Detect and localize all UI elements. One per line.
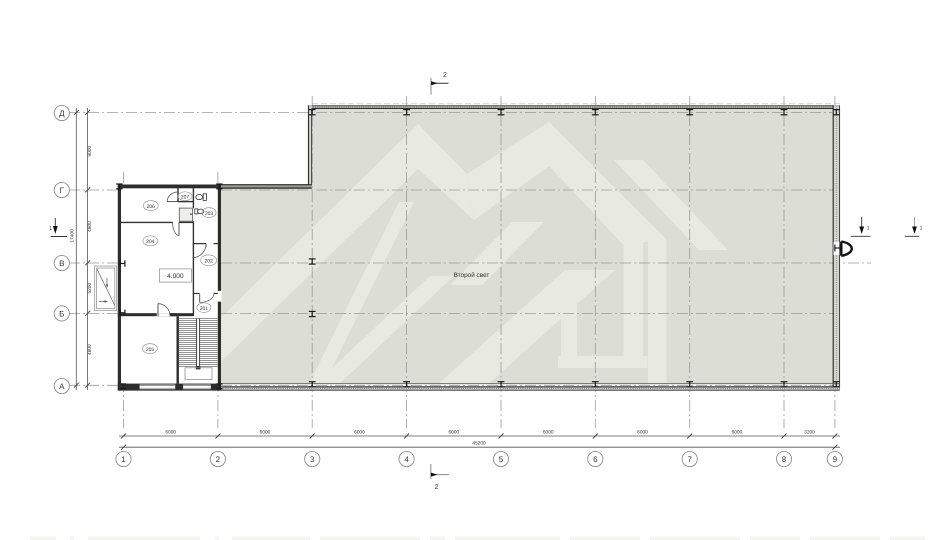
svg-text:6000: 6000 [354, 429, 365, 435]
svg-text:Б: Б [59, 309, 64, 318]
svg-text:Г: Г [60, 186, 65, 195]
svg-text:6000: 6000 [732, 429, 743, 435]
svg-text:А: А [59, 382, 65, 391]
svg-text:Д: Д [59, 109, 65, 118]
svg-text:6000: 6000 [543, 429, 554, 435]
svg-text:6000: 6000 [260, 429, 271, 435]
svg-text:1: 1 [867, 226, 870, 232]
svg-text:45200: 45200 [472, 441, 486, 447]
svg-text:5: 5 [499, 455, 504, 464]
svg-text:6: 6 [593, 455, 598, 464]
svg-text:В: В [59, 259, 64, 268]
svg-text:1: 1 [121, 455, 126, 464]
svg-text:205: 205 [146, 347, 155, 353]
svg-text:7: 7 [687, 455, 692, 464]
svg-text:204: 204 [146, 239, 155, 245]
svg-text:2: 2 [443, 72, 447, 79]
svg-text:6000: 6000 [165, 429, 176, 435]
svg-text:203: 203 [205, 211, 214, 217]
svg-text:3: 3 [310, 455, 315, 464]
svg-text:202: 202 [205, 259, 214, 265]
svg-text:5200: 5200 [87, 283, 93, 294]
svg-text:2: 2 [216, 455, 221, 464]
svg-text:Второй свет: Второй свет [454, 272, 490, 279]
svg-text:6000: 6000 [448, 429, 459, 435]
svg-text:4800: 4800 [87, 221, 93, 232]
svg-text:3200: 3200 [804, 429, 815, 435]
svg-text:1: 1 [920, 226, 923, 232]
svg-text:4: 4 [404, 455, 409, 464]
svg-text:206: 206 [147, 204, 156, 210]
svg-text:4800: 4800 [87, 344, 93, 355]
svg-text:201: 201 [200, 306, 209, 312]
svg-text:207: 207 [181, 194, 190, 200]
svg-text:2: 2 [435, 484, 439, 491]
svg-text:4.000: 4.000 [167, 273, 184, 280]
svg-text:17400: 17400 [70, 229, 76, 243]
svg-text:9: 9 [833, 455, 838, 464]
svg-text:6000: 6000 [637, 429, 648, 435]
svg-text:1: 1 [49, 226, 52, 232]
svg-text:8: 8 [782, 455, 787, 464]
svg-text:9000: 9000 [87, 146, 93, 157]
